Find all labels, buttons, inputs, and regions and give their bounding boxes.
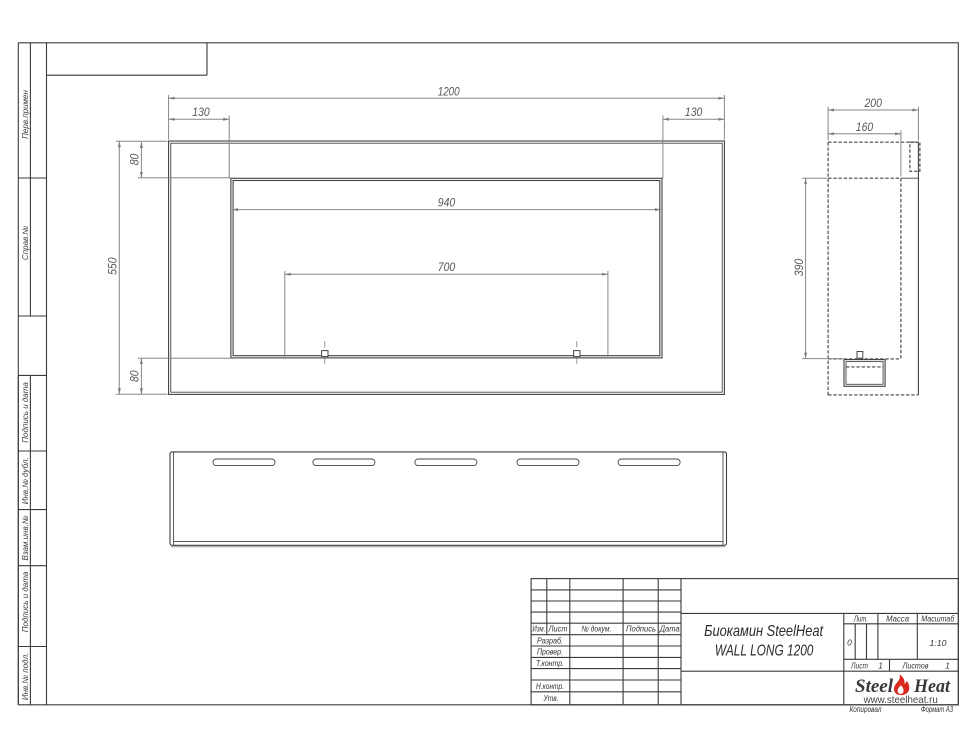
svg-text:Т.контр.: Т.контр. (536, 658, 564, 668)
svg-text:Справ.№: Справ.№ (21, 226, 30, 260)
svg-text:Листов: Листов (902, 661, 929, 671)
svg-text:Масса: Масса (886, 614, 909, 624)
svg-text:Подпись и дата: Подпись и дата (21, 382, 30, 443)
svg-text:80: 80 (128, 370, 142, 382)
svg-text:Изм.: Изм. (532, 624, 545, 634)
svg-text:Провер.: Провер. (537, 647, 563, 657)
svg-text:1200: 1200 (438, 84, 460, 98)
svg-text:700: 700 (438, 260, 456, 274)
svg-text:Биокамин SteelHeat: Биокамин SteelHeat (704, 623, 823, 640)
svg-text:Инв.№ дубл.: Инв.№ дубл. (21, 457, 30, 504)
svg-text:Разраб.: Разраб. (537, 635, 563, 645)
svg-text:0: 0 (847, 637, 852, 647)
svg-text:Формат А3: Формат А3 (921, 704, 953, 714)
svg-text:1: 1 (878, 661, 883, 671)
svg-text:Перв.примен: Перв.примен (21, 90, 30, 139)
svg-text:940: 940 (438, 196, 456, 210)
svg-text:130: 130 (192, 105, 210, 119)
svg-text:Утв.: Утв. (543, 693, 559, 703)
svg-text:130: 130 (685, 105, 703, 119)
svg-text:Лист: Лист (850, 661, 868, 671)
svg-text:Дата: Дата (659, 624, 680, 634)
svg-text:Масштаб: Масштаб (921, 614, 954, 624)
svg-text:1:10: 1:10 (930, 638, 947, 648)
svg-text:№ докум.: № докум. (581, 624, 611, 634)
svg-text:200: 200 (864, 96, 883, 110)
svg-text:Инв.№ подл.: Инв.№ подл. (21, 653, 30, 700)
svg-text:Взам.инв.№: Взам.инв.№ (21, 515, 30, 560)
svg-text:80: 80 (128, 153, 142, 165)
svg-text:Лит.: Лит. (853, 614, 868, 624)
svg-text:160: 160 (856, 120, 874, 134)
svg-text:Подпись: Подпись (626, 624, 656, 634)
svg-text:1: 1 (945, 661, 950, 671)
svg-text:Н.контр.: Н.контр. (536, 681, 564, 691)
svg-text:WALL LONG 1200: WALL LONG 1200 (715, 643, 814, 660)
svg-text:Копировал: Копировал (850, 704, 882, 714)
svg-text:550: 550 (105, 257, 119, 275)
svg-text:Подпись и дата: Подпись и дата (21, 571, 30, 632)
svg-text:390: 390 (792, 259, 806, 277)
svg-text:Лист: Лист (548, 624, 568, 634)
